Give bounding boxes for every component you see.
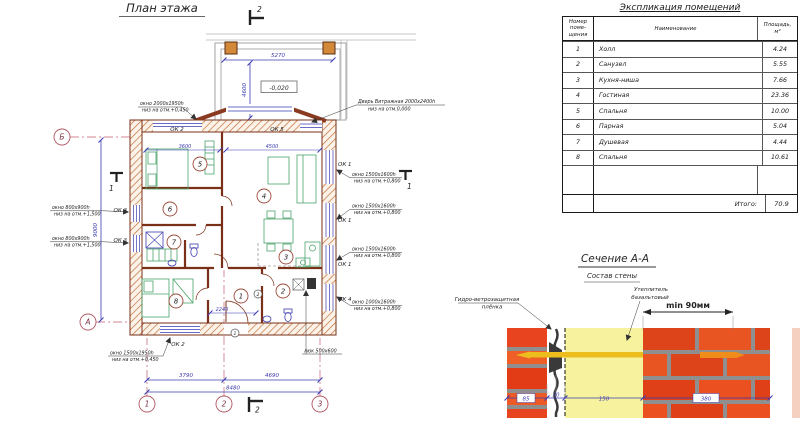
col-header-name: Наименование <box>594 17 758 40</box>
room-schedule-grid: Номер поме- щения Наименование Площадь, … <box>562 16 798 213</box>
dim-150: 150 <box>599 397 610 403</box>
elevation-mark: -0,020 <box>269 85 289 92</box>
washbasin <box>263 316 271 322</box>
window-label: низ на отм.+0,450 <box>142 108 189 114</box>
window-label: окно 800х900h <box>52 205 90 211</box>
film-label: плёнка <box>482 305 503 311</box>
insulation-label: базальтовый <box>631 295 669 301</box>
sauna-bench <box>147 249 177 261</box>
dim-9000: 9000 <box>93 223 99 237</box>
boiler <box>307 278 316 289</box>
axis-a: А <box>84 318 90 327</box>
window-tag-ok3: ОК 3 <box>114 208 128 214</box>
section-mark-2-top: 2 <box>257 5 262 14</box>
dim-380: 380 <box>701 397 712 403</box>
window-label: низ на отм.+1,500 <box>54 243 101 249</box>
room-number: 8 <box>174 298 179 306</box>
window-tag-ok2: ОК 2 <box>171 342 185 348</box>
window-label: окно 1500х1600h <box>352 204 396 210</box>
terrace-column <box>225 42 237 54</box>
windows <box>131 104 336 335</box>
room-number: 7 <box>172 239 177 247</box>
window-tag-ok5: ОК 5 <box>270 127 284 133</box>
window-tag-ok2: ОК 2 <box>170 127 184 133</box>
bed <box>146 149 188 189</box>
room-number: 4 <box>262 193 266 201</box>
window-label: низ на отм.+0,800 <box>354 306 401 312</box>
wall-section-detail: Сечение А-А Состав стены <box>455 253 800 418</box>
wall-tie <box>516 352 745 359</box>
dim-2240: 2240 <box>216 307 229 313</box>
axis-3: 3 <box>318 400 323 409</box>
window-label: окно 1000х1600h <box>352 300 396 306</box>
room-schedule-title: Экспликация помещений <box>562 3 798 13</box>
dim-8480: 8480 <box>226 386 240 392</box>
table-row: 1 Холл 4.24 <box>563 41 797 57</box>
table-row: 4 Гостиная 23.36 <box>563 88 797 104</box>
axis-lines <box>70 137 320 396</box>
window-label: низ на отм.+0,800 <box>354 179 401 185</box>
dim-5270: 5270 <box>271 53 285 59</box>
room-number: 3 <box>284 254 288 262</box>
axis-markers: Б А 1 2 3 <box>54 129 328 412</box>
dim-4500: 4500 <box>266 144 279 150</box>
main-brick-wall <box>643 328 770 418</box>
total-label: Итого: <box>594 195 766 212</box>
section-mark-1-right: 1 <box>407 182 412 191</box>
room-number: 2 <box>281 288 286 296</box>
table-row: 3 Кухня-ниша 7.66 <box>563 72 797 88</box>
axis-2: 2 <box>222 400 227 409</box>
table-empty-row <box>563 165 797 194</box>
window-label: низ на отм.+0,800 <box>354 253 401 259</box>
dim-4600: 4600 <box>242 83 248 97</box>
section-mark-2-bottom: 2 <box>255 406 260 415</box>
room-number: 1 <box>239 293 243 301</box>
door-tag: 2 <box>257 292 260 298</box>
window-tag-ok1: ОК 1 <box>338 162 351 168</box>
section-subtitle: Состав стены <box>587 272 638 280</box>
section-mark-1-left: 1 <box>109 184 114 193</box>
window-label: низ на отм.+0,450 <box>112 357 159 363</box>
window-label: окно 1500х1600h <box>352 247 396 253</box>
exterior-walls <box>130 109 336 335</box>
table-row: 5 Спальня 10.00 <box>563 103 797 119</box>
terrace-column <box>323 42 335 54</box>
section-title: Сечение А-А <box>581 253 649 265</box>
axis-b: Б <box>59 133 64 142</box>
bed <box>142 279 169 317</box>
table-total-row: Итого: 70.9 <box>563 194 797 212</box>
facing-brick-layer <box>507 328 547 418</box>
window-label: окно 1500х1600h <box>352 172 396 178</box>
table-header-row: Номер поме- щения Наименование Площадь, … <box>563 17 797 41</box>
basalt-insulation-layer <box>565 328 643 418</box>
kitchen-counter <box>305 242 320 266</box>
plan-title: План этажа <box>126 1 198 15</box>
dim-3790: 3790 <box>179 373 193 379</box>
min-thickness-label: min 90мм <box>666 301 710 310</box>
col-header-number: Номер поме- щения <box>563 17 594 40</box>
axis-1: 1 <box>145 400 150 409</box>
col-header-area: Площадь, м² <box>758 17 797 40</box>
door-label: низ на отм.0,000 <box>368 107 411 113</box>
window-label: низ на отм.+1,500 <box>54 212 101 218</box>
table-row: 7 Душевая 4.44 <box>563 134 797 150</box>
room-number: 5 <box>198 161 203 169</box>
drawing-sheet: План этажа 5270 <box>0 0 800 421</box>
door-label: Дверь Витражная 2000х2400h <box>357 99 435 105</box>
room-number: 6 <box>168 206 173 214</box>
dim-85: 85 <box>523 397 530 403</box>
table-row: 6 Парная 5.04 <box>563 119 797 135</box>
dim-30: 30 <box>553 393 560 399</box>
window-label: низ на отм.+0,800 <box>354 210 401 216</box>
window-tag-ok1: ОК 1 <box>338 218 351 224</box>
table-row: 2 Санузел 5.55 <box>563 57 797 73</box>
wardrobe <box>205 141 214 174</box>
window-label: окно 800х900h <box>52 236 90 242</box>
dining-table <box>264 219 293 243</box>
total-value: 70.9 <box>766 195 797 212</box>
window-label: окно 2000х1950h <box>140 101 184 107</box>
section-cut-marks: 2 2 1 1 <box>109 5 412 415</box>
room-schedule: Экспликация помещений Номер поме- щения … <box>562 3 798 213</box>
window-tag-ok1: ОК 1 <box>338 262 351 268</box>
floor-plan: План этажа 5270 <box>50 1 445 415</box>
dim-4690: 4690 <box>265 373 279 379</box>
film-label: Гидро-ветрозащитная <box>455 297 520 303</box>
window-label: окно 1500х1950h <box>110 351 154 357</box>
door-tag: 1 <box>234 331 237 337</box>
coffee-table <box>268 157 289 184</box>
hatch-label: люк 500х600 <box>303 349 337 355</box>
furniture <box>142 141 320 317</box>
insulation-label: Утеплитель <box>634 287 668 293</box>
dim-3600: 3600 <box>179 144 192 150</box>
sofa <box>297 155 316 203</box>
table-row: 8 Спальня 10.61 <box>563 150 797 166</box>
